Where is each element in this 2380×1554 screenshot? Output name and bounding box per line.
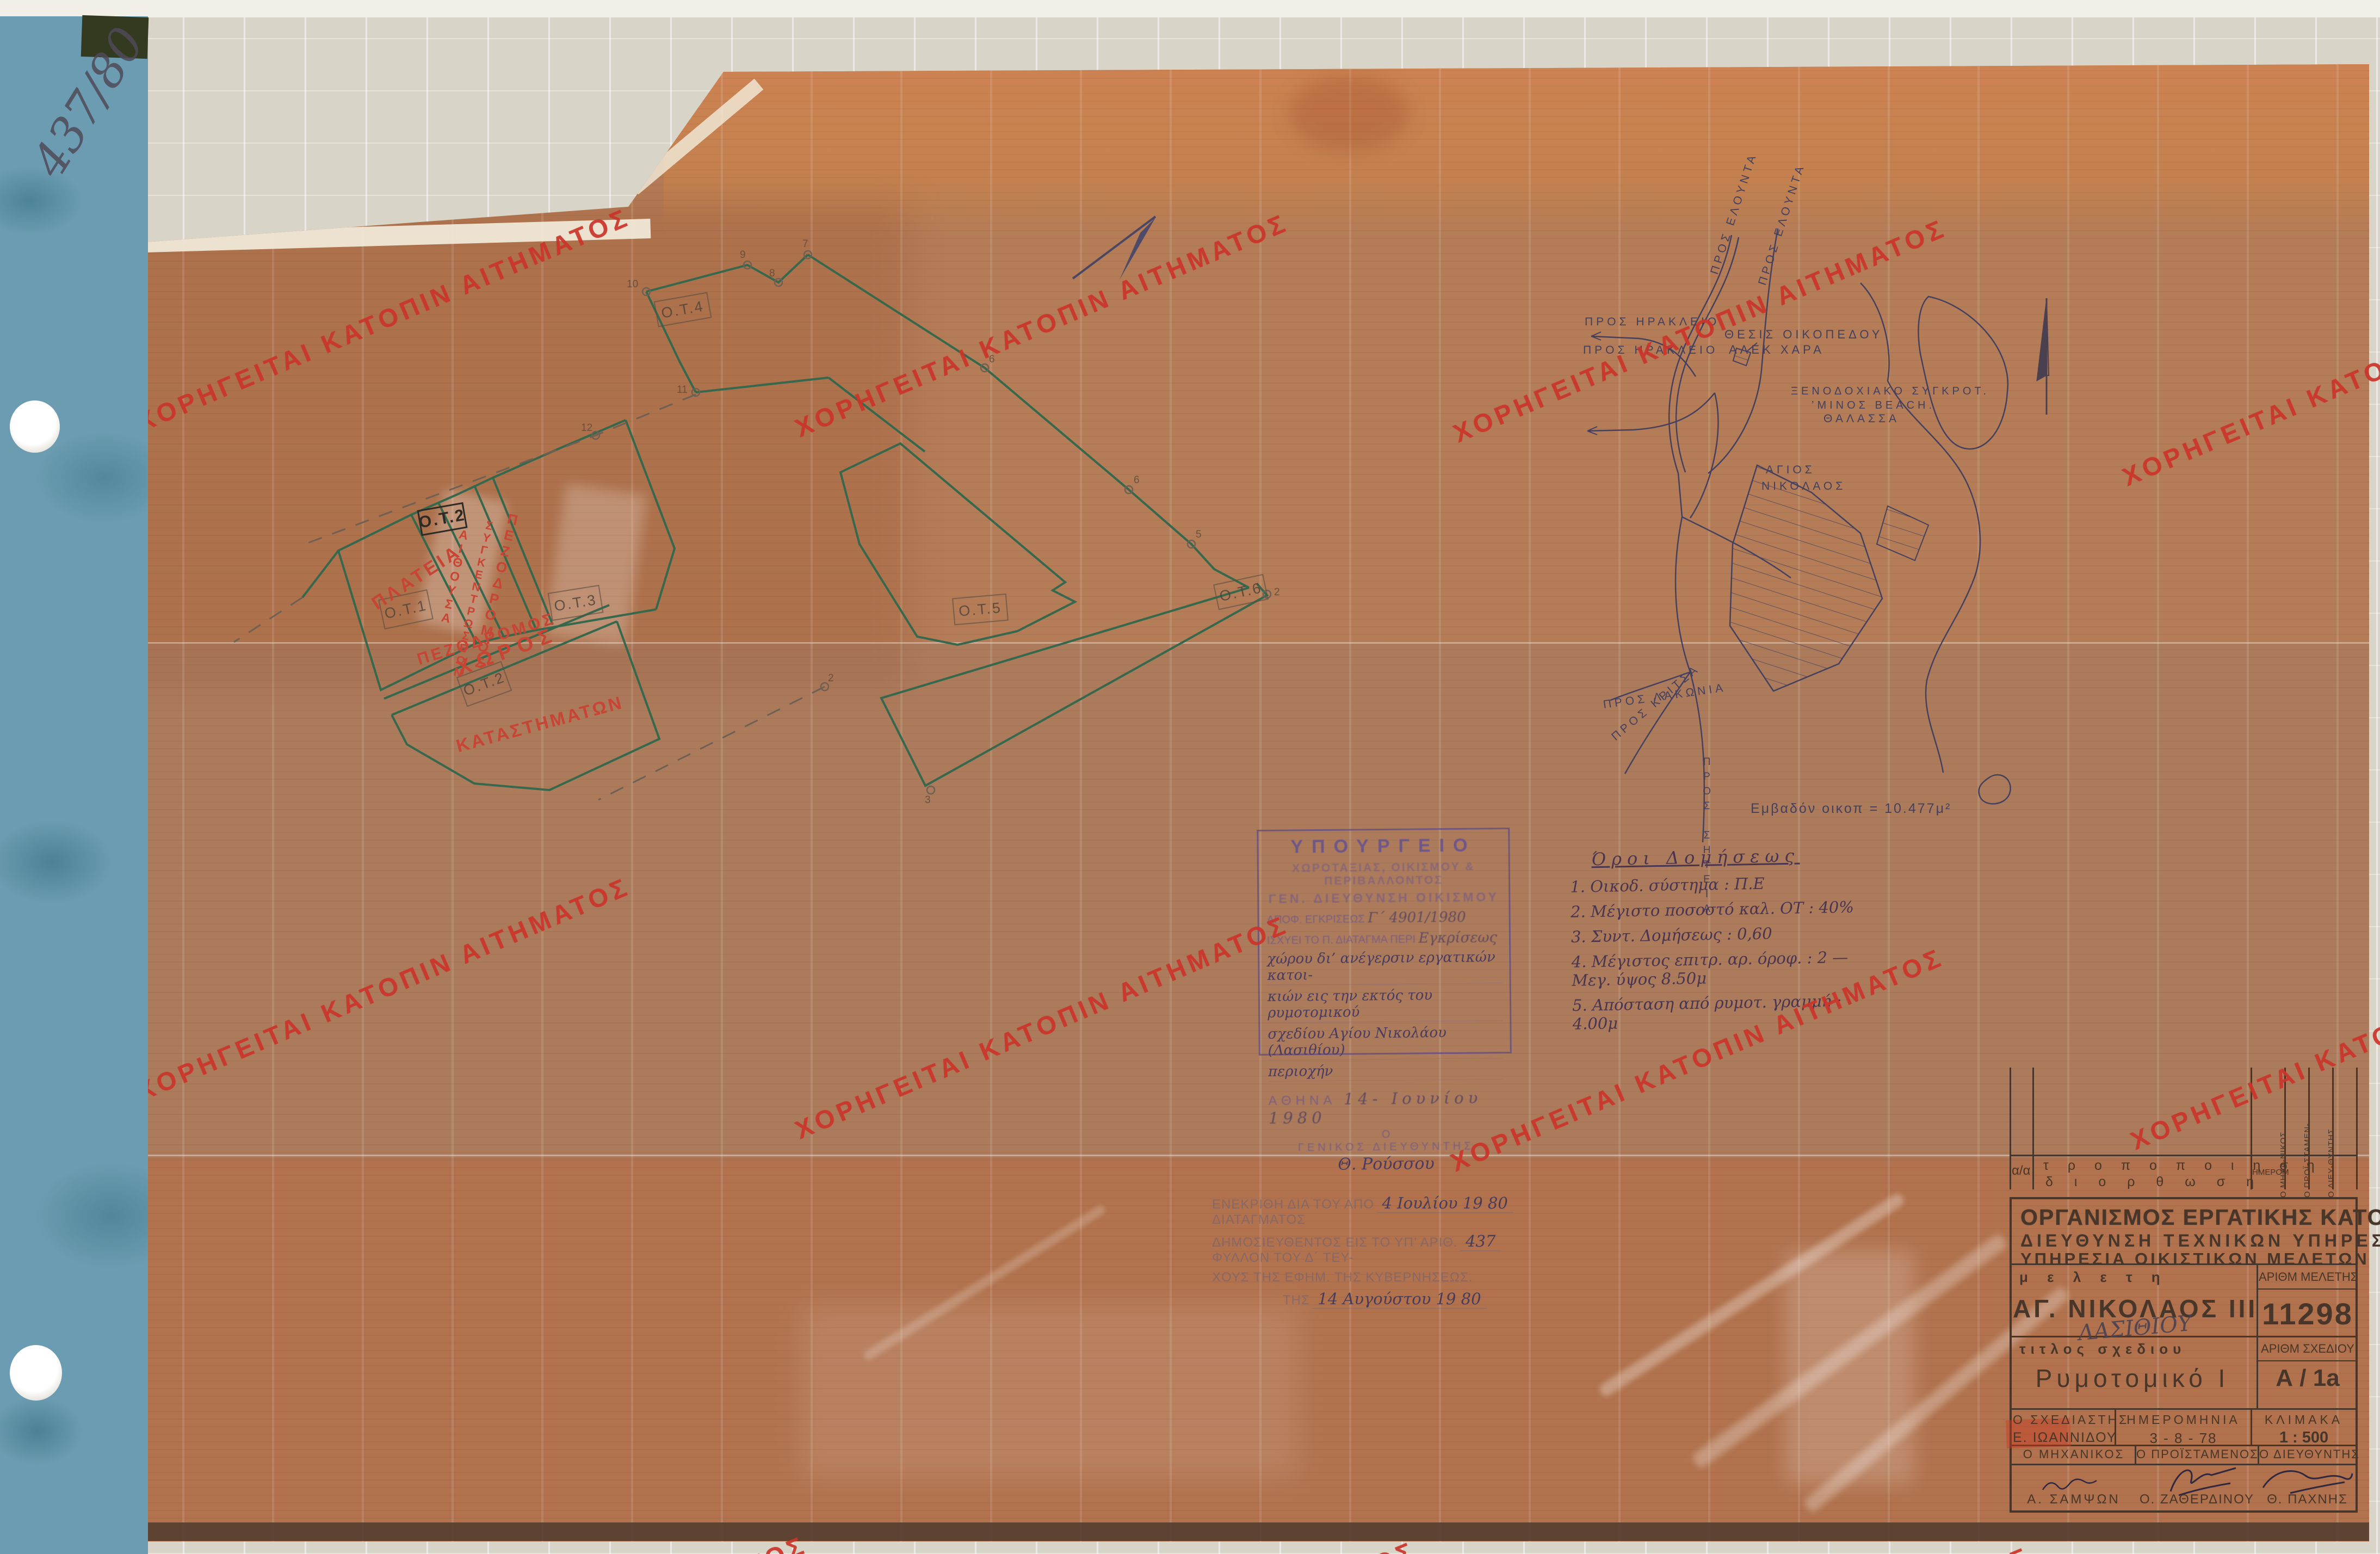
vertex-number: 11 bbox=[677, 384, 688, 396]
approval-printed: ΦΥΛΛΟΝ ΤΟΥ Δ΄ ΤΕΥ- bbox=[1212, 1250, 1353, 1265]
approval-handwritten: 4 Ιουλίου 19 80 bbox=[1377, 1194, 1513, 1213]
revisions-supervisor-label: Ο ΠΡΟΪ-ΣΤΑΜΕΝ- bbox=[2303, 1123, 2312, 1198]
map-label-hotel: ΞΕΝΟΔΟΧΙΑΚΟ ΣΥΓΚΡΟΤ. bbox=[1791, 385, 1989, 398]
stamp-ministry-title: ΥΠΟΥΡΓΕΙΟ bbox=[1266, 835, 1500, 858]
date-label: ΗΜΕΡΟΜΗΝΙΑ bbox=[2116, 1413, 2251, 1427]
approval-printed: ΕΝΕΚΡΙΘΗ ΔΙΑ ΤΟΥ ΑΠΟ bbox=[1212, 1197, 1374, 1212]
plan-dashed-lines bbox=[234, 394, 825, 800]
engineer-label: Ο ΜΗΧΑΝΙΚΟΣ bbox=[2013, 1447, 2135, 1461]
stamp-body-line: σχεδίου Αγίου Νικολάου (Λασιθίου) bbox=[1268, 1024, 1503, 1060]
stamp-decree-row: ΙΣΧΥΕΙ ΤΟ Π. ΔΙΑΤΑΓΜΑ ΠΕΡΙ Εγκρίσεως bbox=[1267, 929, 1501, 948]
approval-handwritten: 14 Αυγούστου 19 80 bbox=[1312, 1290, 1486, 1309]
stamp-handwritten-number: Γ΄ 4901/1980 bbox=[1368, 909, 1466, 927]
study-label: μ ε λ ε τ η bbox=[2019, 1269, 2168, 1286]
map-label-sea: ΘΑΛΑΣΣΑ bbox=[1823, 412, 1900, 425]
stamp-city: ΑΘΗΝΑ bbox=[1268, 1093, 1336, 1108]
block-label-text: Ο.Τ.4 bbox=[660, 298, 706, 322]
map-label-minos-beach: ’ΜΙΝΟΣ BEACH. bbox=[1812, 399, 1935, 412]
director-label: Ο ΔΙΕΥΘΥΝΤΗΣ bbox=[2259, 1447, 2356, 1461]
approval-printed: ΤΗΣ bbox=[1283, 1293, 1310, 1308]
drafter-name: Ε. ΙΩΑΝΝΙΔΟΥ bbox=[2013, 1430, 2114, 1446]
date-value: 3 - 8 - 78 bbox=[2116, 1430, 2251, 1447]
block-label-text: Ο.Τ.5 bbox=[958, 599, 1003, 620]
map-label-thesis-oikopedou: ΘΕΣΙΣ ΟΙΚΟΠΕΔΟΥ bbox=[1724, 328, 1883, 342]
drawing-title-label: τιτλος σχεδιου bbox=[2019, 1341, 2186, 1358]
supervisor-name: Ο. ΖΑΘΕΡΔΙΝΟΥ bbox=[2136, 1492, 2258, 1507]
vertex-number: 5 bbox=[1196, 529, 1202, 541]
engineer-name: Α. ΣΑΜΨΩΝ bbox=[2013, 1492, 2135, 1507]
supervisor-label: Ο ΠΡΟΪΣΤΑΜΕΝΟΣ bbox=[2136, 1447, 2258, 1461]
approval-printed: ΔΙΑΤΑΓΜΑΤΟΣ bbox=[1212, 1212, 1306, 1227]
block-label-text: Ο.Τ.3 bbox=[553, 591, 598, 614]
stamp-directorate: ΓΕΝ. ΔΙΕΥΘΥΝΣΗ ΟΙΚΙΣΜΟΥ bbox=[1266, 890, 1501, 906]
revisions-aa-label: α/α bbox=[2012, 1163, 2030, 1179]
stamp-body-line: περιοχήν bbox=[1268, 1062, 1503, 1082]
gazette-approval-note: ΕΝΕΚΡΙΘΗ ΔΙΑ ΤΟΥ ΑΠΟ 4 Ιουλίου 19 80 ΔΙΑ… bbox=[1212, 1189, 1538, 1308]
vertex-number: 12 bbox=[581, 422, 592, 434]
ministry-approval-stamp: ΥΠΟΥΡΓΕΙΟ ΧΩΡΟΤΑΞΙΑΣ, ΟΙΚΙΣΜΟΥ & ΠΕΡΙΒΑΛ… bbox=[1257, 828, 1512, 1056]
approval-printed: ΔΗΜΟΣΙΕΥΘΕΝΤΟΣ ΕΙΣ ΤΟ ΥΠ’ ΑΡΙΘ. bbox=[1212, 1235, 1458, 1250]
terms-title: Όροι Δομήσεως bbox=[1591, 844, 1875, 869]
drawing-title-value: Ρυμοτομικό Ι bbox=[2013, 1364, 2252, 1393]
blue-binder-strip: 437/80 bbox=[0, 16, 148, 1554]
vertex-number: 9 bbox=[740, 249, 746, 261]
revisions-engineer-label: Ο ΜΗΧΑ-ΝΙΚΟΣ bbox=[2279, 1131, 2288, 1198]
approval-handwritten: 437 bbox=[1460, 1232, 1501, 1251]
director-name: Θ. ΠΑΧΝΗΣ bbox=[2259, 1492, 2356, 1507]
study-number-value: 11298 bbox=[2259, 1296, 2357, 1331]
terms-item: 4. Μέγιστος επιτρ. αρ. όροφ. : 2 — Μεγ. … bbox=[1571, 947, 1876, 990]
punch-hole bbox=[10, 1345, 62, 1401]
stamp-body-line: χώρου δι’ ανέγερσιν εργατικών κατοι- bbox=[1267, 949, 1502, 985]
punch-hole bbox=[10, 400, 60, 453]
vertex-number: 7 bbox=[802, 238, 808, 250]
vertex-number: 8 bbox=[769, 268, 775, 280]
vertex-number: 6 bbox=[1134, 474, 1140, 486]
org-service: ΥΠΗΡΕΣΙΑ ΟΙΚΙΣΤΙΚΩΝ ΜΕΛΕΤΩΝ bbox=[2020, 1249, 2347, 1269]
revisions-director-label: Ο ΔΙΕΥ-ΘΥΝΤΗΣ bbox=[2327, 1128, 2336, 1198]
vertex-number: 3 bbox=[925, 794, 931, 806]
scale-value: 1 : 500 bbox=[2252, 1429, 2356, 1447]
org-name: ΟΡΓΑΝΙΣΜΟΣ ΕΡΓΑΤΙΚΗΣ ΚΑΤΟΙΚΙΑΣ bbox=[2020, 1205, 2347, 1230]
vertex-number: 2 bbox=[1274, 587, 1280, 599]
map-area-note: Εμβαδόν οικοπ = 10.477μ² bbox=[1751, 801, 1951, 817]
block-label-ot5: Ο.Τ.5 bbox=[952, 594, 1009, 626]
scale-label: ΚΛΙΜΑΚΑ bbox=[2252, 1413, 2356, 1427]
stamp-approval-number-row: ΑΠΟΦ. ΕΓΚΡΙΣΕΩΣ Γ΄ 4901/1980 bbox=[1266, 909, 1501, 927]
vertex-number: 2 bbox=[828, 673, 834, 684]
revisions-correction-label: δ ι ο ρ θ ω σ η bbox=[2045, 1174, 2262, 1190]
map-label-nikolaos: ΝΙΚΟΛΑΟΣ bbox=[1761, 480, 1846, 493]
stamp-handwritten-text: Εγκρίσεως bbox=[1418, 929, 1497, 946]
drawing-number-label: ΑΡΙΘΜ ΣΧΕΔΙΟΥ bbox=[2259, 1342, 2357, 1356]
stamp-date-row: ΑΘΗΝΑ 14- Ιουνίου 1980 bbox=[1268, 1088, 1503, 1127]
study-number-label: ΑΡΙΘΜ ΜΕΛΕΤΗΣ bbox=[2259, 1270, 2357, 1284]
block-label-text: Ο.Τ.6 bbox=[1218, 579, 1264, 605]
plan-vertex-circles bbox=[592, 251, 1271, 794]
north-arrow-icon bbox=[2037, 298, 2049, 415]
stamp-ministry-subtitle: ΧΩΡΟΤΑΞΙΑΣ, ΟΙΚΙΣΜΟΥ & ΠΕΡΙΒΑΛΛΟΝΤΟΣ bbox=[1266, 860, 1501, 889]
terms-item: 2. Μέγιστο ποσοστό καλ. ΟΤ : 40% bbox=[1571, 897, 1876, 921]
stamp-signature-name: Θ. Ρούσσου bbox=[1338, 1154, 1435, 1174]
org-directorate: ΔΙΕΥΘΥΝΣΗ ΤΕΧΝΙΚΩΝ ΥΠΗΡΕΣΙΩΝ bbox=[2020, 1231, 2347, 1251]
approval-printed: ΧΟΥΣ ΤΗΣ ΕΦΗΜ. ΤΗΣ ΚΥΒΕΡΝΗΣΕΩΣ. bbox=[1212, 1270, 1473, 1285]
terms-item: 3. Συντ. Δομήσεως : 0,60 bbox=[1571, 922, 1876, 946]
drawing-number-value: Α / 1a bbox=[2259, 1365, 2357, 1392]
terms-item: 1. Οικοδ. σύστημα : Π.Ε bbox=[1570, 872, 1875, 896]
vertex-number: 10 bbox=[627, 279, 638, 291]
map-label-agios: ΑΓΙΟΣ bbox=[1766, 464, 1815, 477]
stamp-body-line: κιών εις την εκτός του ρυμοτομικού bbox=[1268, 986, 1503, 1023]
drafter-label: Ο ΣΧΕΔΙΑΣΤΗΣ bbox=[2013, 1413, 2114, 1427]
map-label-alek-xara: ΑΛΕΚ ΧΑΡΑ bbox=[1729, 343, 1825, 357]
scanned-blueprint-page: Ο.Τ.1 Ο.Τ.2 Ο.Τ.3 Ο.Τ.4 Ο.Τ.5 Ο.Τ.6 Ο.Τ.… bbox=[0, 0, 2380, 1554]
